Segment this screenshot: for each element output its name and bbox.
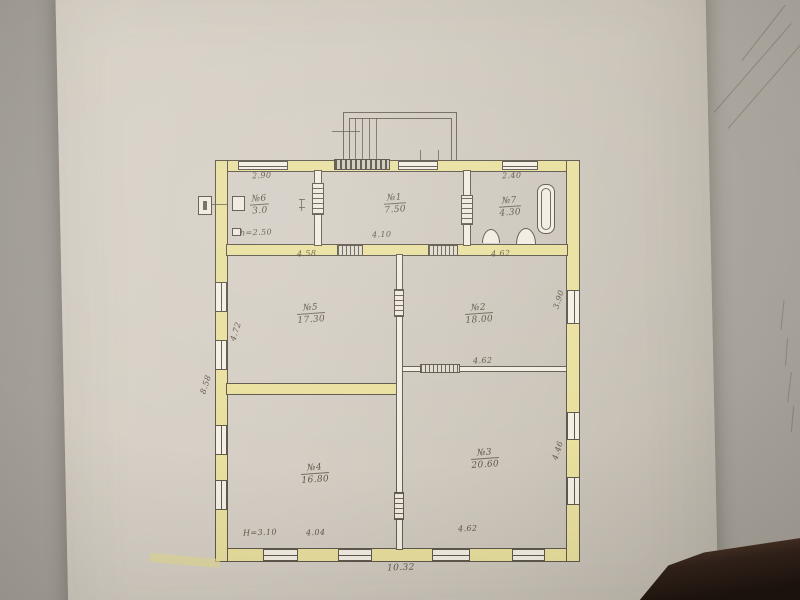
window	[215, 425, 227, 455]
photo-of-floor-plan: №6 3.0 №1 7.50 №7 4.30 №5 17.30 №2 18.00…	[0, 0, 800, 600]
window	[398, 161, 438, 170]
door-room5-room2	[394, 289, 404, 317]
window	[567, 290, 580, 324]
door-room4-room3	[394, 492, 404, 520]
dim-room4-width: 4.04	[306, 528, 326, 538]
sink	[482, 229, 500, 243]
dim-left-outer-height: 8.58	[198, 374, 213, 395]
dim-room3-top-width: 4.62	[473, 356, 493, 366]
room-3-area: 20.60	[471, 457, 500, 471]
window	[215, 480, 227, 510]
section-marker	[299, 199, 305, 200]
stove-box	[232, 196, 245, 211]
window	[567, 412, 580, 440]
toilet	[516, 228, 536, 244]
room-3-label: №3 20.60	[470, 447, 499, 471]
dim-room2-width: 4.62	[491, 249, 511, 259]
room-4-label: №4 16.80	[300, 462, 329, 486]
room-1-label: №1 7.50	[383, 192, 406, 215]
window	[432, 549, 470, 561]
floor-plan-drawing: №6 3.0 №1 7.50 №7 4.30 №5 17.30 №2 18.00…	[0, 0, 800, 600]
reference-marker-glyph	[203, 201, 207, 210]
porch-step-line	[362, 118, 363, 160]
room-1-area: 7.50	[384, 202, 406, 215]
room-5-label: №5 17.30	[296, 302, 325, 326]
door-room2-room3	[420, 364, 460, 373]
room-2-label: №2 18.00	[464, 302, 493, 326]
room-5-area: 17.30	[297, 312, 326, 326]
highlighter-streak	[150, 553, 221, 568]
room-6-label: №6 3.0	[249, 193, 270, 216]
window	[215, 340, 227, 370]
interior-wall-room5-room4	[226, 383, 402, 395]
note-ceiling-height: h=2.50	[240, 227, 272, 237]
dim-left-inner-height: 4.72	[228, 321, 243, 342]
dim-room2-height: 3.90	[551, 289, 566, 310]
bathtub	[537, 184, 555, 234]
window	[502, 161, 538, 170]
window	[263, 549, 298, 561]
note-room-height: Н=3.10	[243, 527, 277, 537]
porch-step-line	[355, 118, 356, 160]
porch-step-line	[369, 118, 370, 160]
section-marker	[299, 207, 305, 208]
window	[238, 161, 288, 170]
dim-room6-width: 2.90	[252, 171, 272, 181]
dim-room1-width: 4.10	[372, 230, 392, 240]
room-7-label: №7 4.30	[498, 195, 521, 218]
dim-room3-bottom-width: 4.62	[458, 524, 478, 534]
dim-room3-height: 4.46	[550, 440, 565, 461]
dim-room5-width: 4.58	[297, 249, 317, 259]
window	[338, 549, 372, 561]
room-7-area: 4.30	[499, 205, 521, 218]
reference-marker-leader	[212, 204, 228, 205]
room-7-number: №7	[498, 195, 520, 206]
window	[215, 282, 227, 312]
dim-overall-width: 10.32	[387, 563, 415, 574]
window	[512, 549, 545, 561]
room-4-area: 16.80	[301, 472, 330, 486]
section-marker	[301, 199, 302, 211]
porch-step-line	[376, 118, 377, 160]
room-6-number: №6	[249, 193, 269, 204]
room-6-area: 3.0	[250, 203, 270, 216]
room-2-area: 18.00	[465, 312, 494, 326]
door-room1-room5	[337, 245, 363, 256]
porch-inner-outline	[349, 118, 452, 162]
room-1-number: №1	[383, 192, 405, 203]
door-room1-room2	[428, 245, 458, 256]
porch-stair-arrow	[332, 131, 360, 132]
window	[567, 477, 580, 505]
door-room6-room1	[312, 183, 324, 215]
dim-room7-width: 2.40	[502, 171, 522, 181]
door-room1-room7	[461, 195, 473, 225]
entrance-door-threshold	[334, 159, 390, 170]
